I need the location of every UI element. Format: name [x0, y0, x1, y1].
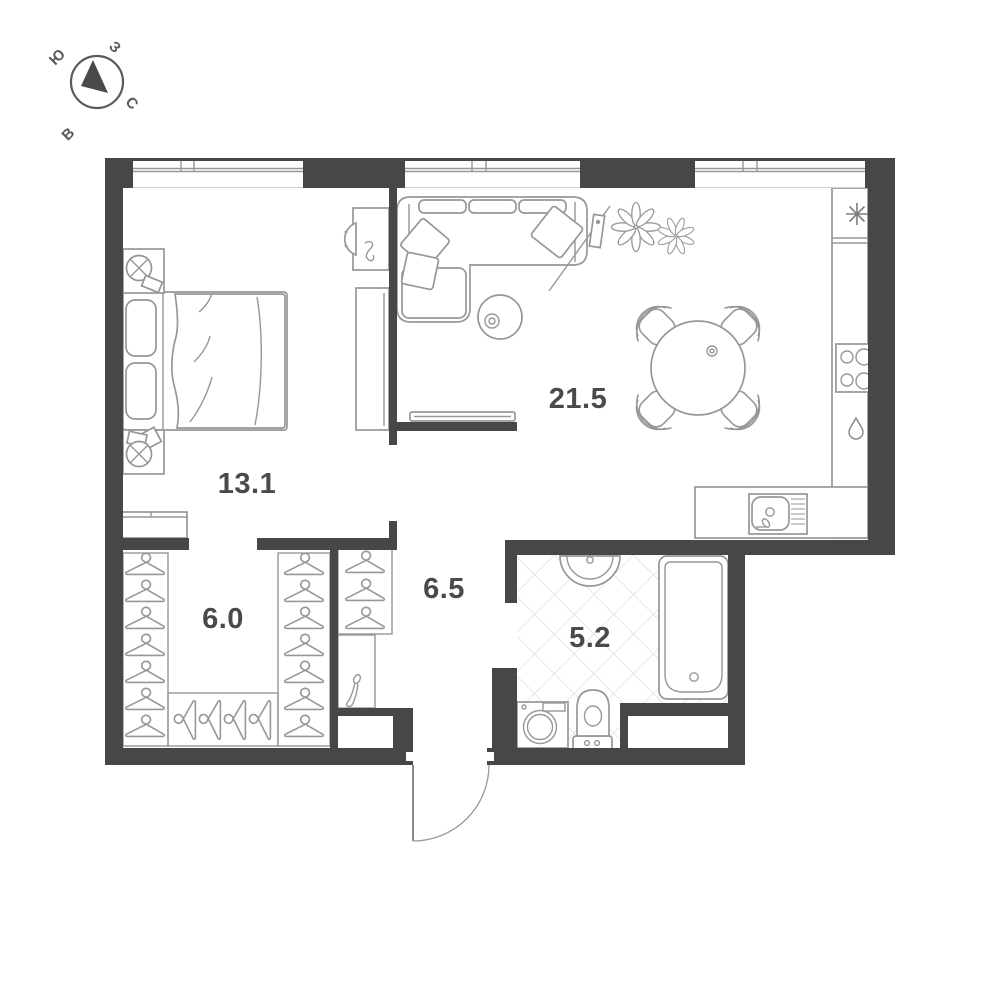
- wardrobe-room-furniture: [123, 553, 330, 746]
- kitchen-sink: [749, 494, 807, 534]
- room-area-label-living-kitchen: 21.5: [549, 383, 607, 415]
- room-area-label-bedroom: 13.1: [218, 468, 276, 500]
- toilet: [573, 690, 612, 750]
- entrance-door-swing-arc: [413, 765, 489, 841]
- window-living: [405, 161, 580, 188]
- dining-table: [651, 321, 745, 415]
- pillow: [126, 300, 156, 356]
- compass-letter-north: С: [122, 94, 142, 114]
- floor-plan: Ю З С В: [0, 0, 1000, 1000]
- blanket: [172, 294, 285, 428]
- doors: [189, 446, 517, 841]
- pillow: [126, 363, 156, 419]
- compass-arrow-icon: [81, 60, 108, 93]
- room-area-label-wardrobe: 6.0: [202, 603, 244, 635]
- living-room-furniture: [397, 188, 873, 538]
- hallway-furniture: [338, 548, 392, 708]
- nightstand-top: [123, 249, 164, 293]
- sofa-pillow: [401, 252, 439, 290]
- room-area-label-hallway: 6.5: [423, 573, 465, 605]
- window-kitchen: [695, 161, 865, 188]
- double-bed: [123, 292, 287, 430]
- shoehorn-icon: [347, 674, 362, 707]
- hangers-bottom-row: [174, 701, 270, 740]
- dining-table-group: [626, 296, 769, 439]
- shoe-cabinet: [338, 635, 375, 708]
- nightstand-bottom: [123, 427, 164, 474]
- hallway-niche: [338, 716, 393, 748]
- compass-letter-west: З: [105, 38, 124, 57]
- compass-letter-south: Ю: [46, 46, 69, 69]
- washing-machine: [517, 702, 568, 748]
- closet-right: [278, 553, 330, 746]
- room-area-label-bathroom: 5.2: [569, 622, 611, 654]
- windows: [133, 161, 865, 188]
- hall-closet: [338, 548, 392, 634]
- tv-half-wall: [395, 422, 517, 431]
- bathroom-pocket-door: [504, 603, 517, 667]
- desk: [345, 208, 389, 270]
- compass-letter-east: В: [59, 124, 79, 144]
- bathtub: [659, 556, 728, 699]
- tv-console: [410, 412, 515, 421]
- floor-plan-page: Ю З С В: [0, 0, 1000, 1000]
- window-bedroom: [133, 161, 303, 188]
- coffee-table: [478, 295, 522, 339]
- bedroom-pocket-door: [389, 446, 398, 520]
- bedroom-dresser: [115, 512, 187, 538]
- bathroom-niche: [628, 716, 728, 748]
- compass-rose: Ю З С В: [46, 38, 142, 144]
- desk-chair: [345, 223, 356, 255]
- wardrobe-pocket-door: [189, 539, 257, 549]
- hangers-left-column: [126, 553, 165, 736]
- entrance-door: [406, 752, 494, 841]
- closet-left: [123, 553, 168, 746]
- stove-icon: [836, 344, 873, 392]
- hangers-right-column: [285, 553, 324, 736]
- bedroom-wardrobe: [356, 288, 389, 430]
- plant: [612, 203, 695, 255]
